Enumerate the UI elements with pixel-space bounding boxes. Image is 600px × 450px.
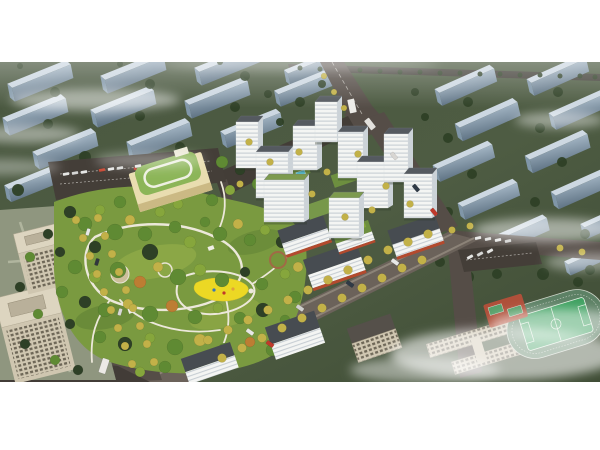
aerial-render-image — [0, 62, 600, 382]
park-pavilion — [249, 289, 254, 294]
haze-overlay — [0, 62, 600, 108]
tower — [264, 174, 309, 225]
aerial-render-figure — [0, 0, 600, 450]
garden-ring — [270, 252, 286, 268]
